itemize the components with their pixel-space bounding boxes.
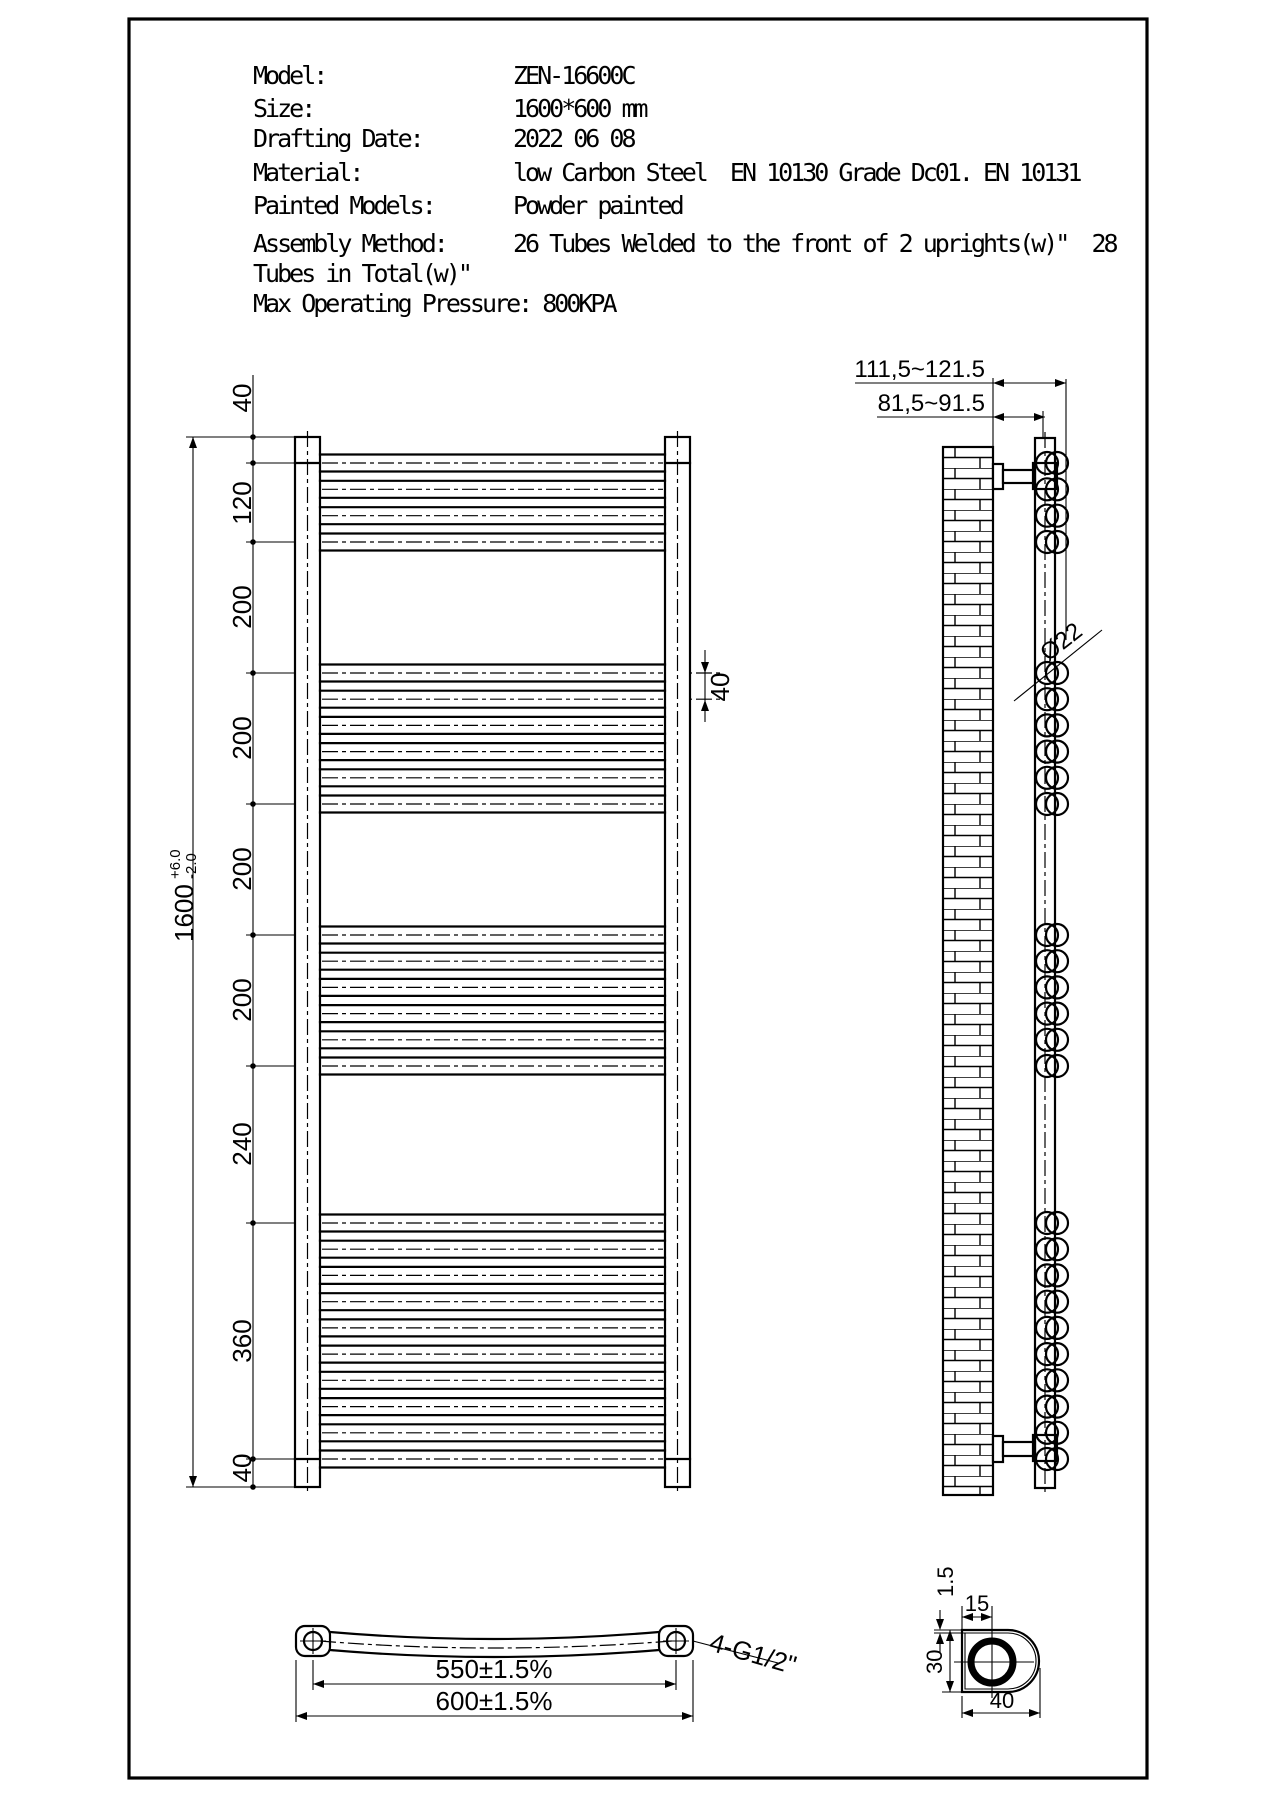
bottom-view: 550±1.5% 600±1.5% 4-G1/2" bbox=[296, 1626, 800, 1722]
front-tubes bbox=[320, 455, 665, 1468]
dim-tick bbox=[250, 434, 256, 440]
chain-dim-label: 120 bbox=[227, 481, 257, 524]
spec-label: Max Operating Pressure: 800KPA bbox=[253, 289, 617, 318]
height-dim-label: 1600 +6.0 -2.0 bbox=[167, 849, 200, 942]
bracket-shaft bbox=[1003, 470, 1035, 483]
dim-tick bbox=[250, 539, 256, 545]
spec-label: Assembly Method: bbox=[253, 229, 446, 258]
offset-dim-label: 15 bbox=[965, 1591, 989, 1616]
tube-curve-centerline bbox=[320, 1641, 672, 1648]
spec-value: 2022 06 08 bbox=[513, 124, 635, 153]
arrowhead bbox=[189, 437, 197, 448]
arrowhead bbox=[313, 1680, 324, 1688]
pitch-dim-label: 40 bbox=[705, 673, 735, 702]
arrowhead bbox=[993, 413, 1004, 421]
spec-label: Model: bbox=[253, 61, 325, 90]
chain-dim-label: 200 bbox=[227, 585, 257, 628]
arrowhead bbox=[701, 662, 709, 673]
svg-text:1600: 1600 bbox=[169, 884, 199, 942]
chain-dim-label: 240 bbox=[227, 1122, 257, 1165]
front-view: 1600 +6.0 -2.0 4012020020020020024036040… bbox=[167, 375, 735, 1493]
arrowhead bbox=[936, 1619, 944, 1630]
chain-dim-label: 40 bbox=[227, 1454, 257, 1483]
arrowhead bbox=[993, 379, 1004, 387]
centers-dim-label: 550±1.5% bbox=[436, 1654, 553, 1684]
dim-tick bbox=[250, 801, 256, 807]
wall-dim-label: 1.5 bbox=[933, 1566, 958, 1597]
tube-curve-top bbox=[330, 1632, 659, 1639]
bracket-shaft bbox=[1003, 1442, 1035, 1456]
spec-block: Model: ZEN-16600C Size: 1600*600 mm Draf… bbox=[253, 61, 1118, 318]
height-dim-label-detail: 30 bbox=[922, 1650, 947, 1674]
spec-label: Drafting Date: bbox=[253, 124, 422, 153]
spec-value: ZEN-16600C bbox=[513, 61, 635, 90]
dim-tick bbox=[250, 1220, 256, 1226]
detail-view: 15 1.5 30 40 bbox=[922, 1566, 1040, 1718]
drawing-sheet: Model: ZEN-16600C Size: 1600*600 mm Draf… bbox=[0, 0, 1273, 1800]
chain-dim-label: 40 bbox=[227, 384, 257, 413]
dim-tick bbox=[250, 460, 256, 466]
svg-text:-2.0: -2.0 bbox=[183, 853, 200, 879]
arrowhead bbox=[1055, 379, 1066, 387]
dim-tick bbox=[250, 1063, 256, 1069]
overall-dim-label: 600±1.5% bbox=[436, 1686, 553, 1716]
arrowhead bbox=[946, 1681, 954, 1692]
side-dim-outer-label: 111,5~121.5 bbox=[854, 356, 985, 383]
chain-dim-label: 200 bbox=[227, 716, 257, 759]
fitting-label: 4-G1/2" bbox=[706, 1627, 800, 1680]
svg-text:+6.0: +6.0 bbox=[167, 849, 184, 879]
dim-tick bbox=[250, 1484, 256, 1490]
dim-tick bbox=[250, 932, 256, 938]
arrowhead bbox=[936, 1633, 944, 1644]
chain-dim-label: 200 bbox=[227, 978, 257, 1021]
spec-label: Size: bbox=[253, 94, 313, 123]
bracket-flange bbox=[993, 464, 1003, 489]
arrowhead bbox=[1029, 1709, 1040, 1717]
arrowhead bbox=[189, 1476, 197, 1487]
spec-value: 26 Tubes Welded to the front of 2 uprigh… bbox=[513, 229, 1118, 258]
spec-label: Painted Models: bbox=[253, 191, 434, 220]
bracket-flange bbox=[993, 1436, 1003, 1462]
arrowhead bbox=[682, 1712, 693, 1720]
arrowhead bbox=[665, 1680, 676, 1688]
side-view: 111,5~121.5 81,5~91.5 Ø22 bbox=[854, 356, 1102, 1495]
arrowhead bbox=[962, 1709, 973, 1717]
chain-dim-label: 360 bbox=[227, 1319, 257, 1362]
spec-value: Powder painted bbox=[513, 191, 683, 220]
spec-label: Tubes in Total(w)" bbox=[253, 259, 470, 288]
spec-value: low Carbon Steel EN 10130 Grade Dc01. EN… bbox=[513, 158, 1081, 187]
arrowhead bbox=[946, 1630, 954, 1641]
spec-label: Material: bbox=[253, 158, 361, 187]
wall-section bbox=[943, 447, 993, 1495]
width-dim-label: 40 bbox=[990, 1688, 1014, 1713]
side-dim-inner-label: 81,5~91.5 bbox=[878, 390, 985, 417]
spec-value: 1600*600 mm bbox=[513, 94, 648, 123]
arrowhead bbox=[296, 1712, 307, 1720]
technical-drawing: Model: ZEN-16600C Size: 1600*600 mm Draf… bbox=[0, 0, 1273, 1800]
chain-dim-label: 200 bbox=[227, 847, 257, 890]
dim-tick bbox=[250, 670, 256, 676]
